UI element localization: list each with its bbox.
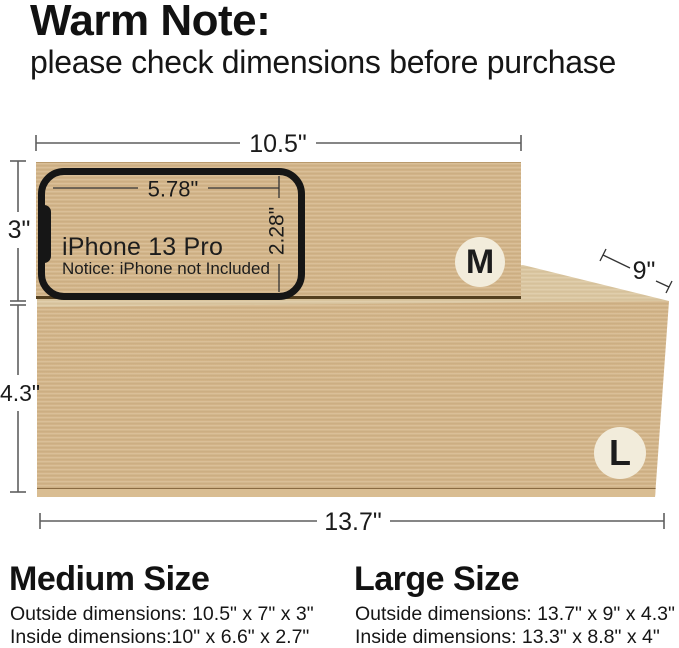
- large-size-heading: Large Size: [354, 560, 519, 599]
- iphone-model-label: iPhone 13 Pro: [62, 233, 223, 262]
- large-box-bottom-edge: [37, 488, 669, 497]
- medium-outside-dimensions: Outside dimensions: 10.5" x 7" x 3": [10, 603, 314, 626]
- medium-badge-letter: M: [466, 243, 494, 282]
- dim-large-depth: 9": [600, 249, 672, 293]
- dim-large-width-label: 13.7": [324, 508, 382, 536]
- product-dimension-diagram: Warm Note: please check dimensions befor…: [0, 0, 679, 648]
- large-inside-dimensions: Inside dimensions: 13.3" x 8.8" x 4": [355, 626, 660, 648]
- dim-large-depth-label: 9": [633, 257, 656, 285]
- dim-medium-width: 10.5": [36, 130, 521, 158]
- dim-large-width: 13.7": [40, 508, 664, 536]
- page-subtitle: please check dimensions before purchase: [30, 44, 616, 81]
- iphone-notice-label: Notice: iPhone not Included: [62, 259, 270, 279]
- medium-size-badge: M: [455, 237, 505, 287]
- dim-large-height: 4.3": [0, 305, 40, 492]
- large-size-badge: L: [594, 427, 646, 479]
- dim-medium-height: 3": [8, 161, 31, 301]
- dim-medium-width-label: 10.5": [249, 130, 307, 158]
- large-badge-letter: L: [609, 432, 631, 474]
- medium-size-heading: Medium Size: [9, 560, 209, 599]
- medium-inside-dimensions: Inside dimensions:10" x 6.6" x 2.7": [10, 626, 309, 648]
- page-title: Warm Note:: [30, 0, 270, 46]
- large-outside-dimensions: Outside dimensions: 13.7" x 9" x 4.3": [355, 603, 675, 626]
- iphone-notch: [38, 205, 51, 263]
- large-box: [37, 301, 669, 497]
- dim-large-height-label: 4.3": [0, 380, 40, 406]
- dim-medium-height-label: 3": [8, 216, 31, 244]
